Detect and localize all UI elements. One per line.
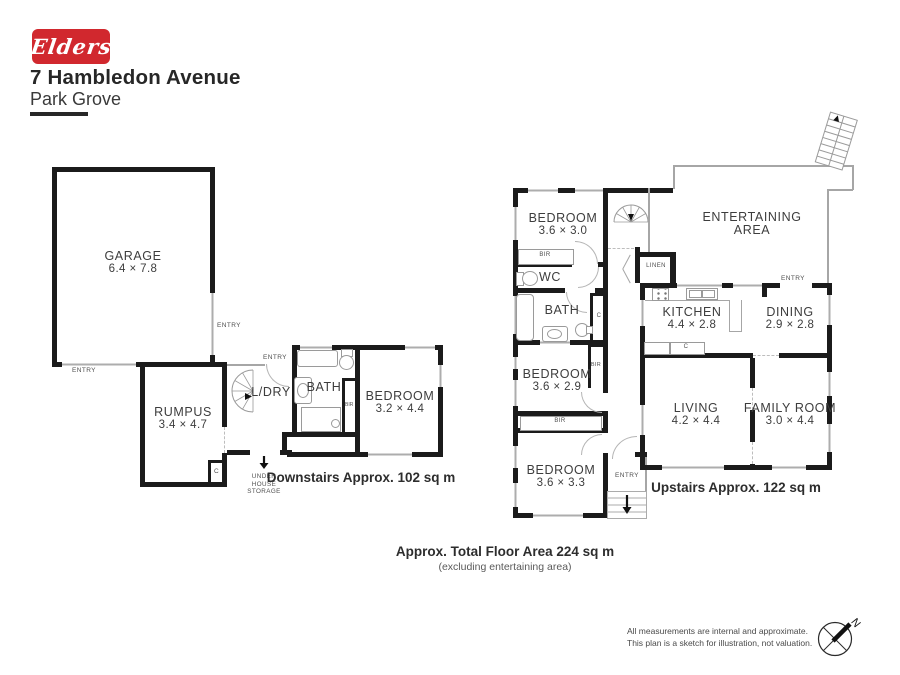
room-label-entertaining: ENTERTAINING AREA <box>702 211 801 237</box>
closet-label-kitchen: C <box>684 344 689 350</box>
room-label-garage: GARAGE 6.4 × 7.8 <box>104 250 161 276</box>
room-label-laundry: L/DRY <box>251 386 291 399</box>
total-floor-area-note: (excluding entertaining area) <box>438 561 571 573</box>
room-label-kitchen: KITCHEN 4.4 × 2.8 <box>662 306 721 332</box>
bir-label-band: BIR <box>554 418 565 424</box>
external-stairs-icon <box>808 110 864 174</box>
downstairs-caption: Downstairs Approx. 102 sq m <box>267 470 456 485</box>
bir-label-down: BIR <box>345 402 353 408</box>
room-label-living: LIVING 4.2 × 4.4 <box>672 402 721 428</box>
room-label-dining: DINING 2.9 × 2.8 <box>766 306 815 332</box>
entry-label-dining: ENTRY <box>781 275 805 282</box>
entry-label-garage-right: ENTRY <box>217 322 241 329</box>
page-title: 7 Hambledon Avenue <box>30 66 241 90</box>
bir-label-bed1: BIR <box>539 252 550 258</box>
spiral-stair-upstairs-icon <box>612 192 650 226</box>
entry-label-ldry: ENTRY <box>263 354 287 361</box>
total-floor-area: Approx. Total Floor Area 224 sq m <box>396 544 614 559</box>
entry-stairs-icon <box>607 491 647 519</box>
entry-door-arc <box>266 364 289 387</box>
compass-icon: N <box>812 612 868 664</box>
linen-label: LINEN <box>646 263 666 269</box>
entry-label-garage-bottom: ENTRY <box>72 367 96 374</box>
closet-label-bath: C <box>597 313 602 319</box>
disclaimer: All measurements are internal and approx… <box>627 625 812 650</box>
compass-n-label: N <box>848 616 862 630</box>
elders-logo-text: Elders <box>29 34 113 59</box>
room-label-bedroom3: BEDROOM 3.6 × 3.3 <box>527 464 596 490</box>
room-label-bedroom1: BEDROOM 3.6 × 3.0 <box>529 212 598 238</box>
bir-label-bed2: BIR <box>591 362 601 368</box>
room-label-bedroom2: BEDROOM 3.6 × 2.9 <box>523 368 592 394</box>
room-label-bath-up: BATH <box>545 304 580 317</box>
appliance-icon <box>644 342 670 355</box>
page-subtitle: Park Grove <box>30 89 121 110</box>
elders-logo: Elders <box>32 29 110 64</box>
room-label-bedroom-down: BEDROOM 3.2 × 4.4 <box>366 390 435 416</box>
stove-icon <box>652 288 669 301</box>
title-underline <box>30 112 88 116</box>
floorplan-page: Elders 7 Hambledon Avenue Park Grove <box>0 0 900 675</box>
closet-label-rumpus: C <box>214 468 219 475</box>
room-label-rumpus: RUMPUS 3.4 × 4.7 <box>154 406 212 432</box>
down-arrow-icon <box>258 455 270 470</box>
upstairs-caption: Upstairs Approx. 122 sq m <box>651 480 821 495</box>
entry-label-upstairs: ENTRY <box>615 472 639 479</box>
bathtub-icon <box>297 350 338 367</box>
bathtub-icon <box>516 294 534 341</box>
room-label-wc: WC <box>539 271 561 284</box>
room-label-family: FAMILY ROOM 3.0 × 4.4 <box>744 402 836 428</box>
room-label-bath-down: BATH <box>307 381 342 394</box>
